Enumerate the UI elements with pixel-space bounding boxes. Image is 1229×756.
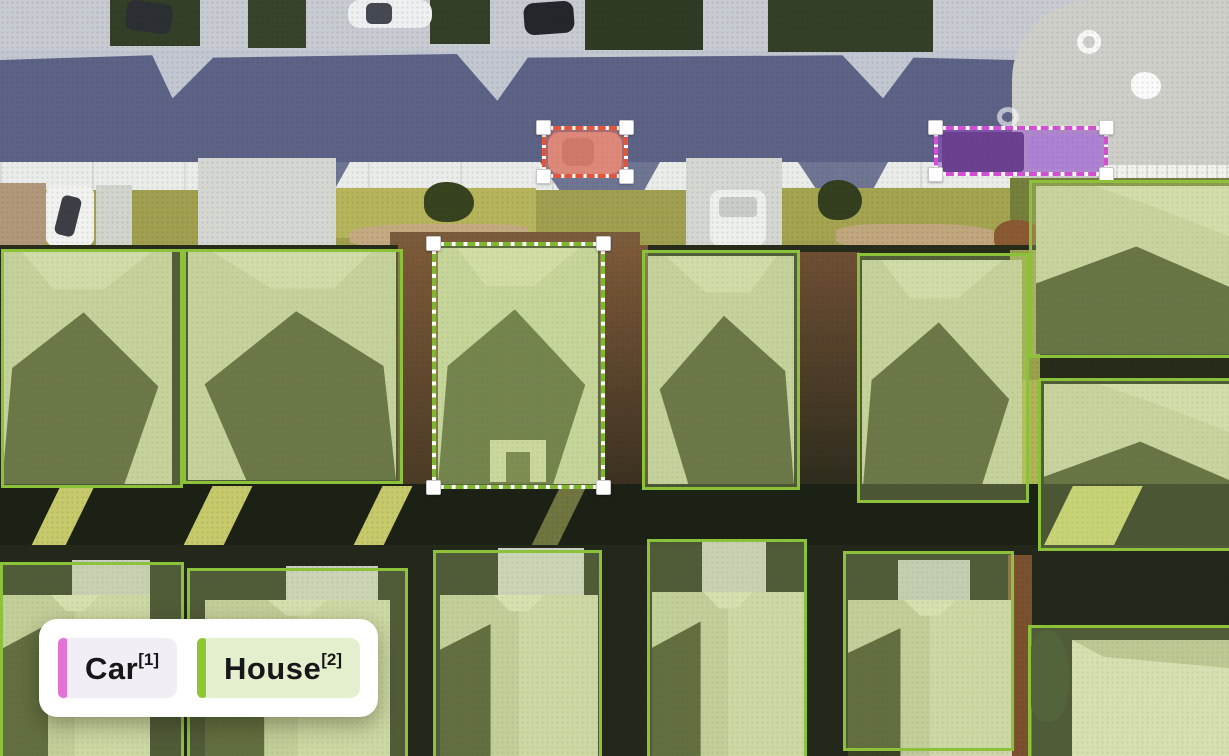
house-box-3[interactable] [642,250,800,490]
car-box-red-handle-bl[interactable] [536,169,551,184]
house-box-selected-handle-br[interactable] [596,480,611,495]
house-box-4[interactable] [857,253,1029,503]
house-box-11[interactable] [843,551,1014,751]
house-box-selected[interactable] [432,242,605,489]
legend-card: Car[1] House[2] [39,619,378,717]
parked-car-dark [523,0,575,35]
legend-car-index: [1] [138,650,159,669]
manhole-ring [1077,30,1101,54]
mulch-column [600,245,648,490]
driveway [198,158,336,252]
house-box-selected-handle-tr[interactable] [596,236,611,251]
top-lawn [585,0,703,50]
house-box-6[interactable] [1038,378,1229,551]
tree [424,182,474,222]
legend-chip-house-body: House[2] [206,638,360,698]
house-box-9[interactable] [433,550,602,756]
walkway [96,185,132,252]
car-box-purple-handle-tr[interactable] [1099,120,1114,135]
legend-chip-house[interactable]: House[2] [197,638,360,698]
house-box-5[interactable] [1029,180,1229,358]
house-box-2[interactable] [183,249,403,484]
car-box-purple[interactable] [934,126,1108,176]
house-box-selected-handle-bl[interactable] [426,480,441,495]
car-box-red[interactable] [542,126,628,178]
car-box-red-handle-br[interactable] [619,169,634,184]
legend-house-index: [2] [321,650,342,669]
mulch-bed [0,183,46,252]
utility-blob [1131,72,1161,99]
manhole-ring [997,107,1019,127]
house-box-1[interactable] [1,249,183,488]
mulch-column [800,252,860,502]
tree [818,180,862,220]
house-box-12[interactable] [1028,625,1229,756]
van-roof [719,197,757,217]
parked-suv [124,0,174,35]
car-windshield [366,3,392,24]
car-box-purple-handle-bl[interactable] [928,167,943,182]
top-lawn [430,0,490,44]
top-lawn [248,0,306,48]
legend-chip-car-body: Car[1] [67,638,177,698]
car-box-purple-handle-tl[interactable] [928,120,943,135]
annotation-canvas: Car[1] House[2] [0,0,1229,756]
house-box-10[interactable] [647,539,807,756]
legend-label-car: Car[1] [85,653,159,684]
legend-label-house: House[2] [224,653,342,684]
car-box-red-handle-tl[interactable] [536,120,551,135]
legend-chip-car[interactable]: Car[1] [58,638,177,698]
car-box-red-handle-tr[interactable] [619,120,634,135]
top-lawn [768,0,933,52]
house-box-selected-handle-tl[interactable] [426,236,441,251]
